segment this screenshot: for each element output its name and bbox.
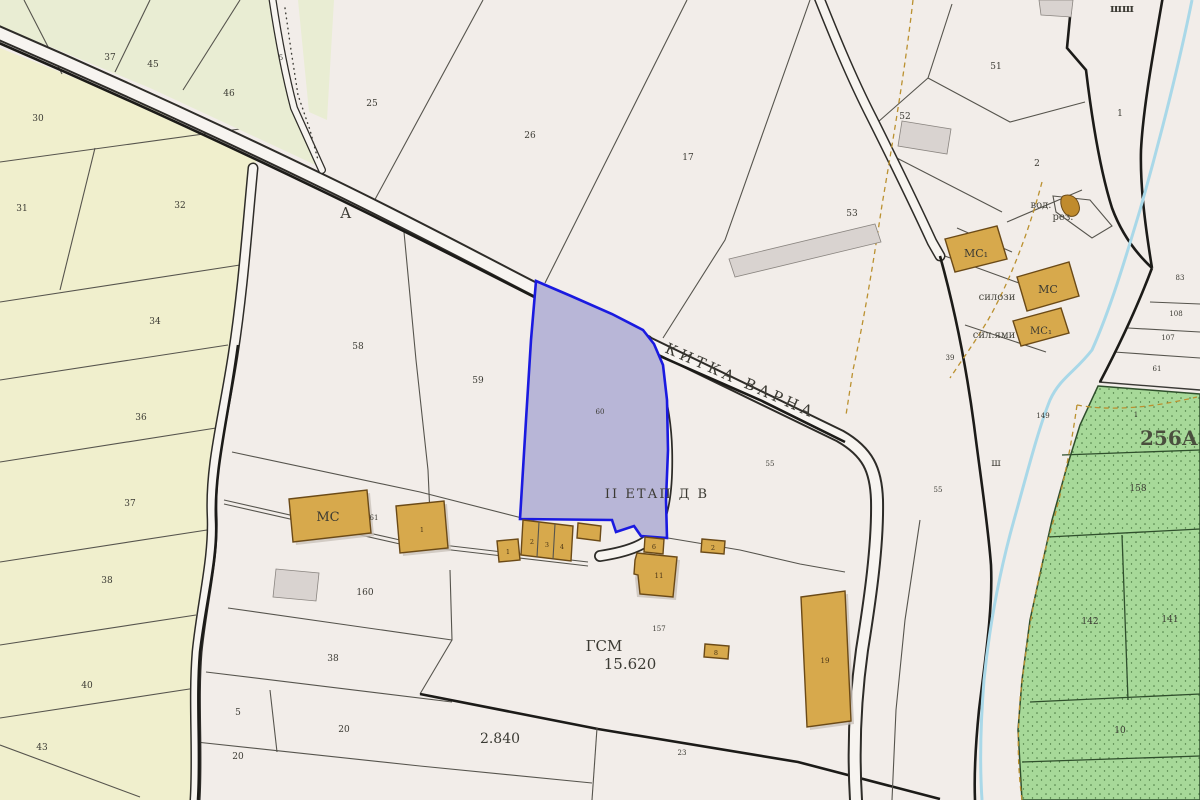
water-reservoir-label-1: вод. — [1031, 200, 1052, 211]
parcel-number: 60 — [596, 408, 605, 416]
parcel-number: 20 — [232, 752, 244, 762]
parcel-number: 37 — [104, 53, 116, 63]
zone-label-256a: 256А / 6 — [1140, 426, 1200, 450]
parcel-number: 10 — [1114, 726, 1126, 736]
parcel-number: 61 — [370, 514, 379, 522]
building-label: 1 — [420, 526, 424, 534]
silage-pits-label: сил.ями — [973, 330, 1016, 341]
parcel-number: 158 — [1129, 484, 1146, 494]
building-label: 3 — [545, 541, 549, 549]
parcel-number: 107 — [1161, 334, 1174, 342]
building-label: МС — [1038, 283, 1058, 296]
parcel-number: 149 — [1036, 412, 1049, 420]
parcel-number: 17 — [682, 153, 694, 163]
building-label: 19 — [821, 657, 830, 665]
parcel-number: 43 — [36, 743, 48, 753]
parcel-number: 25 — [366, 99, 378, 109]
shsh-label: шш — [1110, 2, 1134, 15]
parcel-number: 37 — [124, 499, 136, 509]
parcel-number: 36 — [135, 413, 147, 423]
parcel-number: 32 — [174, 201, 185, 211]
parcel-number: 39 — [946, 354, 955, 362]
sh-label: ш — [991, 458, 1001, 469]
water-reservoir-label-2: рез. — [1053, 212, 1074, 223]
parcel-number: 52 — [899, 112, 910, 122]
parcel-number: 38 — [101, 576, 113, 586]
parcel-number: 23 — [678, 749, 687, 757]
building-label: 4 — [560, 543, 564, 551]
parcel-number: 38 — [327, 654, 339, 664]
etap-label: II ЕТАП Д В — [605, 487, 709, 502]
silozi-label: силози — [979, 292, 1016, 303]
parcel-number: 160 — [356, 588, 373, 598]
parcel-number: 108 — [1169, 310, 1182, 318]
road-label-a: А — [340, 204, 352, 222]
building-label: 2 — [530, 538, 534, 546]
parcel-number: 5 — [279, 54, 283, 62]
area-value-2840: 2.840 — [480, 731, 520, 747]
building-label: МС₁ — [964, 247, 988, 260]
parcel-number: 83 — [1176, 274, 1185, 282]
cadastral-map[interactable]: 37 45 46 5 30 31 32 34 36 37 38 40 43 25… — [0, 0, 1200, 800]
parcel-number: 157 — [652, 625, 665, 633]
parcel-number: 26 — [524, 131, 536, 141]
parcel-number: 58 — [352, 342, 364, 352]
parcel-number: 34 — [149, 317, 161, 327]
parcel-number: 142 — [1081, 617, 1098, 627]
parcel-number: 53 — [846, 209, 858, 219]
gsm-area-value: 15.620 — [604, 655, 657, 673]
parcel-number: 141 — [1161, 615, 1178, 625]
parcel-number: 59 — [472, 376, 484, 386]
building-label: 1 — [506, 548, 510, 556]
parcel-number: 5 — [235, 708, 241, 718]
parcel-number: 61 — [1153, 365, 1162, 373]
parcel-number: 2 — [1034, 159, 1040, 169]
parcel-number: 20 — [338, 725, 350, 735]
building-label: 8 — [714, 649, 718, 657]
gsm-label: ГСМ — [586, 637, 623, 655]
parcel-number: 51 — [990, 62, 1001, 72]
parcel-number: 30 — [32, 114, 44, 124]
parcel-number: 1 — [1134, 411, 1138, 419]
building-label: 11 — [655, 572, 664, 580]
parcel-number: 1 — [1117, 109, 1123, 119]
parcel-number: 46 — [223, 89, 235, 99]
building-label: 2 — [711, 544, 715, 552]
parcel-number: 45 — [147, 60, 159, 70]
parcel-number: 55 — [934, 486, 943, 494]
parcel-number: 31 — [16, 204, 27, 214]
parcel-number: 40 — [81, 681, 93, 691]
building-label: МС — [316, 510, 339, 525]
building-label: 6 — [652, 543, 656, 551]
building-label: МС₁ — [1030, 326, 1052, 337]
parcel-number: 55 — [766, 460, 775, 468]
